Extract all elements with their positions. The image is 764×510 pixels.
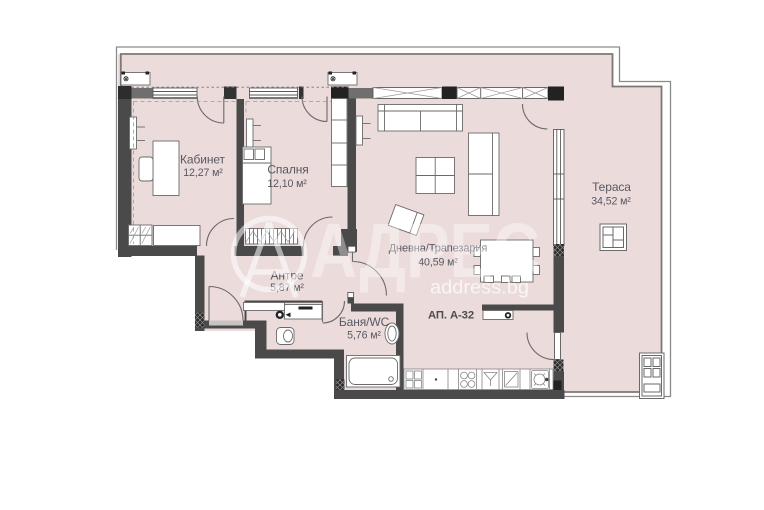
svg-text:Баня/WC: Баня/WC <box>339 315 390 329</box>
svg-text:Тераса: Тераса <box>592 180 631 194</box>
svg-text:5,76 м²: 5,76 м² <box>347 330 381 342</box>
svg-text:address.bg: address.bg <box>430 278 529 299</box>
svg-text:Кабинет: Кабинет <box>180 153 226 167</box>
svg-text:АП. А-32: АП. А-32 <box>428 309 474 321</box>
svg-text:34,52 м²: 34,52 м² <box>591 196 631 208</box>
svg-text:12,10 м²: 12,10 м² <box>267 178 307 190</box>
svg-text:12,27 м²: 12,27 м² <box>183 167 223 179</box>
svg-text:Спалня: Спалня <box>267 163 308 177</box>
